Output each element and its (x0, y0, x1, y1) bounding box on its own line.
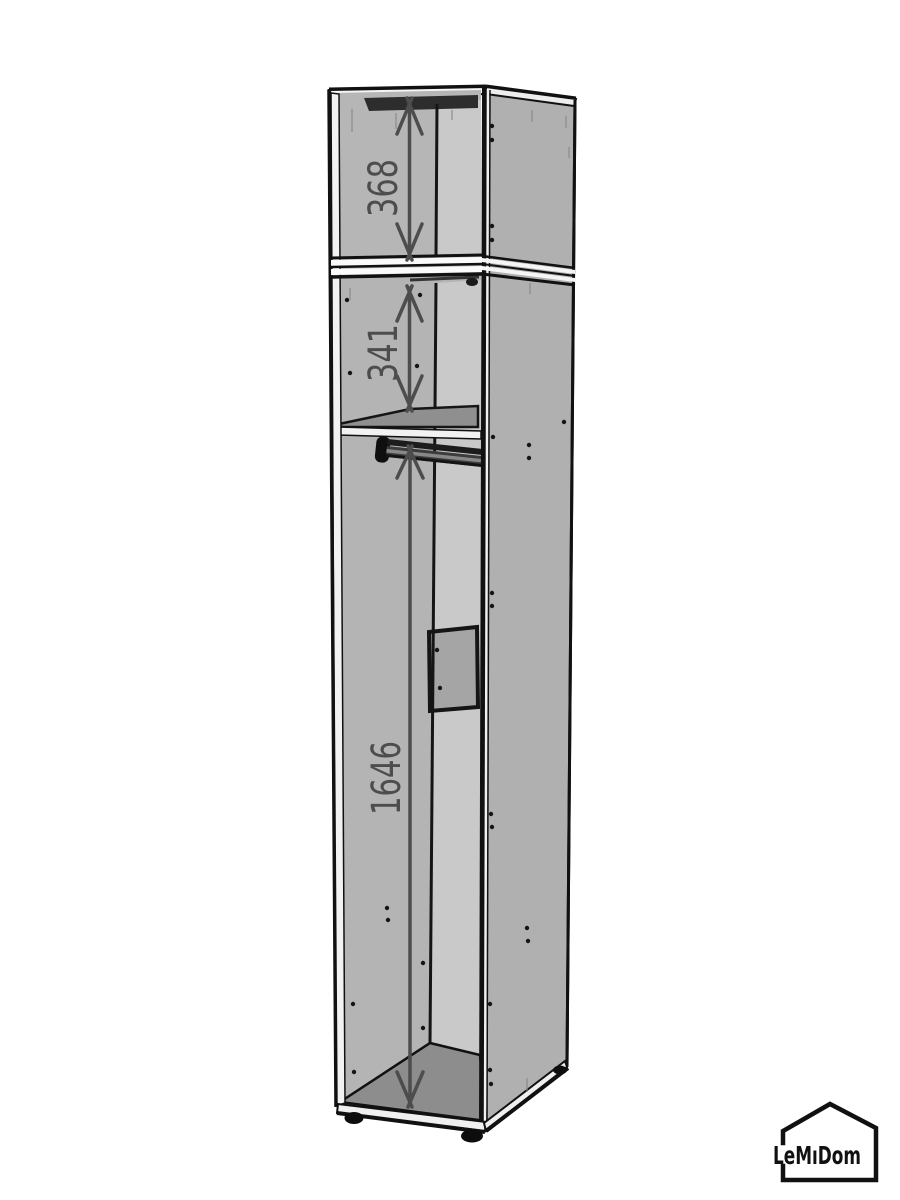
brand-logo: LeMıDom (773, 1104, 876, 1180)
wardrobe-drawing-svg: 368 341 1646 LeMıDom (0, 0, 900, 1200)
dimension-label-368: 368 (361, 159, 407, 217)
rear-right-foot (553, 1066, 567, 1075)
front-right-foot (461, 1130, 483, 1143)
cabinet-right-side-panel (483, 88, 575, 1129)
hole-notch (466, 278, 478, 286)
front-left-foot (345, 1112, 364, 1124)
dimension-label-341: 341 (361, 324, 407, 382)
wardrobe-dimension-diagram: 368 341 1646 LeMıDom (0, 0, 900, 1200)
back-mounting-panel (429, 627, 478, 711)
top-compartment (333, 90, 481, 261)
dimension-label-1646: 1646 (364, 741, 410, 815)
logo-text: LeMıDom (773, 1141, 861, 1170)
